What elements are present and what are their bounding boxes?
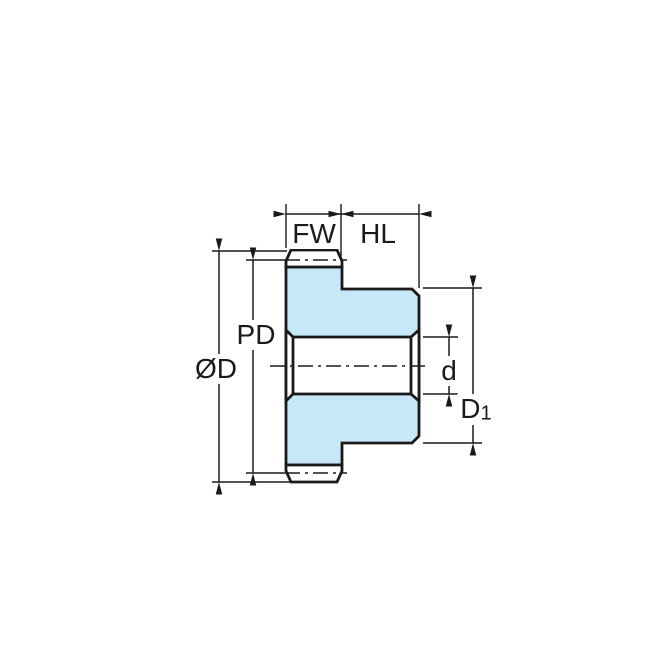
label-hub-diameter-subscript: 1	[481, 403, 492, 425]
label-hub-diameter: D1	[457, 394, 494, 425]
gear-tooth-top	[286, 250, 342, 267]
gear-cross-section-drawing	[0, 0, 670, 670]
label-face-width: FW	[289, 219, 339, 249]
label-outside-diameter: ØD	[192, 354, 240, 384]
label-pitch-diameter: PD	[234, 320, 279, 350]
label-hub-length: HL	[357, 219, 399, 249]
gear-dimension-diagram: FW HL PD ØD d D1	[0, 0, 670, 670]
label-hub-diameter-main: D	[460, 393, 480, 424]
label-bore-diameter: d	[438, 356, 460, 386]
